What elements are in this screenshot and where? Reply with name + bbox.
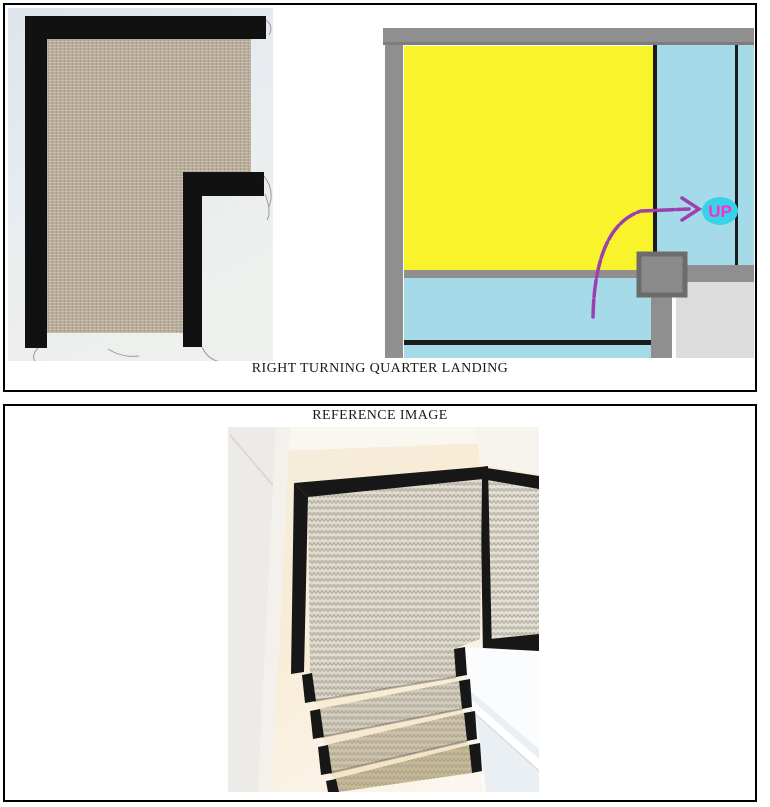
carpet-photo-image xyxy=(8,8,273,361)
upper-runner xyxy=(480,466,539,657)
upper-flight-stairs xyxy=(653,45,754,266)
lower-flight-stairs xyxy=(404,270,655,358)
landing-edge-bar xyxy=(404,270,655,278)
landing-carpet xyxy=(291,467,483,674)
up-label: UP xyxy=(708,202,732,221)
runner-texture xyxy=(487,479,539,639)
landing-spec-panel: UP RIGHT TURNING QUARTER LANDING xyxy=(3,3,757,392)
document-page: UP RIGHT TURNING QUARTER LANDING REFEREN… xyxy=(0,0,770,807)
railing-horizontal xyxy=(683,265,754,282)
binding-notch-left xyxy=(183,172,202,347)
carpet-photo xyxy=(8,8,273,361)
stair-edge-line-3 xyxy=(404,340,652,345)
wall-top-shadow xyxy=(383,42,754,45)
wall-left xyxy=(385,28,403,358)
carpet-texture-upper xyxy=(47,36,251,176)
lower-stair-tread-1 xyxy=(404,278,652,340)
landing-area xyxy=(404,46,655,270)
binding-left xyxy=(25,16,47,348)
landing-texture xyxy=(308,479,482,673)
binding-top xyxy=(25,16,266,39)
carpet-texture-lower xyxy=(47,176,183,333)
stair-edge-line-2 xyxy=(735,45,738,266)
stair-edge-line-1 xyxy=(653,45,657,257)
reference-panel: REFERENCE IMAGE xyxy=(3,404,757,802)
newel-post xyxy=(639,254,685,295)
upper-stair-treads xyxy=(657,45,754,266)
tread-1-binding-right xyxy=(454,647,467,677)
floor-area xyxy=(676,282,754,358)
panel1-caption: RIGHT TURNING QUARTER LANDING xyxy=(5,361,755,377)
stairs-photo xyxy=(228,427,539,792)
reference-title: REFERENCE IMAGE xyxy=(5,408,755,424)
stairs-photo-image xyxy=(228,427,539,792)
floor-plan-diagram: UP xyxy=(383,28,754,358)
lower-stair-tread-2 xyxy=(404,345,652,358)
floor-plan-image: UP xyxy=(383,28,754,358)
